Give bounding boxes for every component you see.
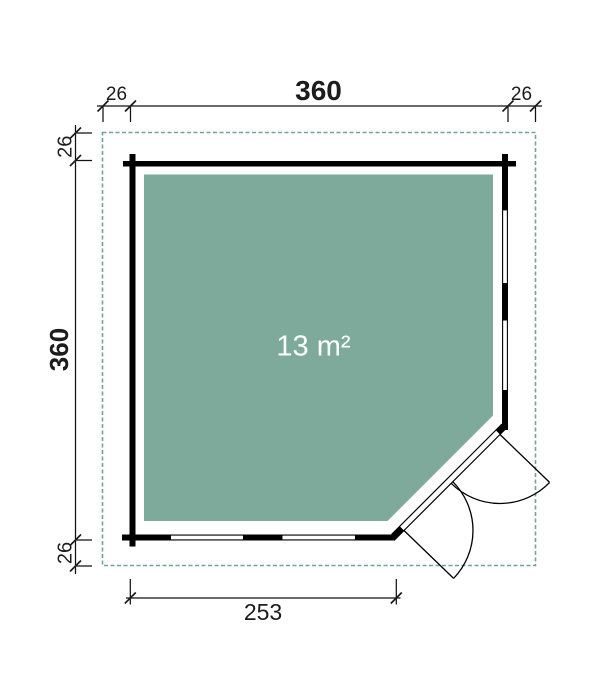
- svg-text:26: 26: [55, 136, 77, 158]
- svg-text:360: 360: [295, 75, 342, 106]
- svg-text:360: 360: [44, 328, 74, 371]
- svg-text:26: 26: [106, 84, 127, 105]
- svg-text:253: 253: [244, 599, 282, 625]
- svg-text:26: 26: [511, 84, 532, 105]
- svg-text:26: 26: [55, 542, 77, 564]
- svg-text:13 m²: 13 m²: [276, 331, 350, 363]
